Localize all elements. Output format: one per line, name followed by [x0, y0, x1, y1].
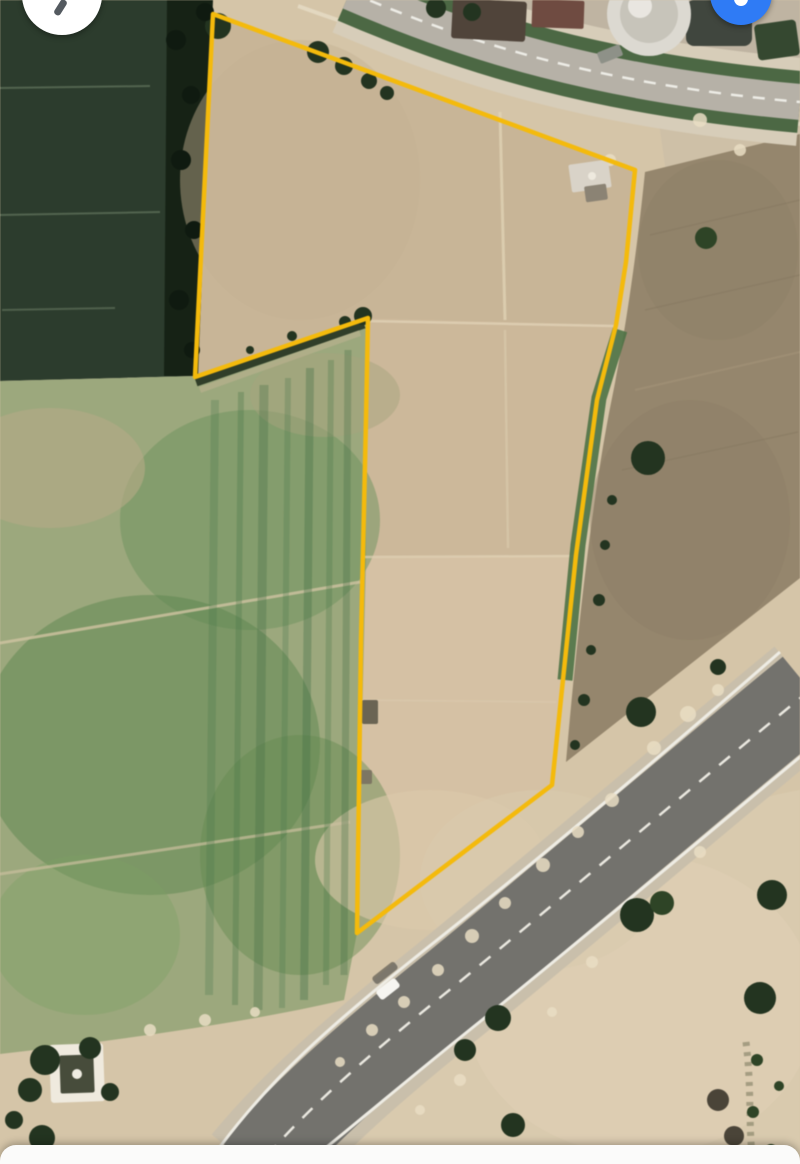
- line-farm-stripe-7: [344, 350, 348, 975]
- speckle: [432, 964, 444, 976]
- structure-hedge-block: [754, 19, 800, 60]
- line-parcel-div-2: [363, 556, 574, 557]
- structure-edge-structure-2: [360, 770, 372, 784]
- tree: [501, 1113, 525, 1137]
- structure-parcel-building-2: [584, 184, 608, 203]
- tree: [463, 3, 481, 21]
- speckle: [199, 1014, 211, 1026]
- tree: [246, 346, 254, 354]
- speckle: [680, 706, 696, 722]
- tree: [707, 1089, 729, 1111]
- speckle: [465, 929, 479, 943]
- location-icon: [734, 0, 748, 6]
- tree: [101, 1083, 119, 1101]
- speckle: [693, 113, 707, 127]
- tree: [578, 694, 590, 706]
- satellite-map-canvas[interactable]: [0, 0, 800, 1164]
- patch-brown-shade-2: [590, 400, 790, 640]
- tree: [79, 1037, 101, 1059]
- tree: [747, 1106, 759, 1118]
- tree: [169, 290, 189, 310]
- speckle: [647, 741, 661, 755]
- tree: [593, 594, 605, 606]
- tree: [30, 1045, 60, 1075]
- speckle: [398, 996, 410, 1008]
- tree: [710, 659, 726, 675]
- tree: [744, 982, 776, 1014]
- speckle: [250, 1007, 260, 1017]
- tree: [774, 1081, 784, 1091]
- tree: [620, 898, 654, 932]
- structure-roof-1: [451, 0, 527, 42]
- tree: [18, 1078, 42, 1102]
- tree: [485, 1005, 511, 1031]
- tree: [626, 697, 656, 727]
- structure-compound-dot: [72, 1069, 82, 1079]
- tree: [454, 1039, 476, 1061]
- speckle: [712, 684, 724, 696]
- speckle: [605, 793, 619, 807]
- speckle: [335, 1057, 345, 1067]
- speckle: [694, 846, 706, 858]
- compass-needle-icon: [53, 0, 68, 17]
- tree: [631, 441, 665, 475]
- patch-brown-shade-1: [638, 160, 798, 340]
- bottom-sheet[interactable]: [0, 1145, 800, 1164]
- tree: [166, 30, 186, 50]
- speckle: [454, 1074, 466, 1086]
- map-screen: [0, 0, 800, 1164]
- tree: [287, 331, 297, 341]
- speckle: [144, 1024, 156, 1036]
- tree: [586, 645, 596, 655]
- tree: [695, 227, 717, 249]
- tree: [380, 86, 394, 100]
- tree: [182, 86, 200, 104]
- tree: [171, 150, 191, 170]
- tree: [600, 540, 610, 550]
- tree: [757, 880, 787, 910]
- tree: [607, 495, 617, 505]
- tree: [570, 740, 580, 750]
- speckle: [572, 826, 584, 838]
- patch-parcel-gray-wash: [180, 40, 420, 320]
- speckle: [536, 858, 550, 872]
- speckle: [734, 144, 746, 156]
- speckle: [547, 1007, 557, 1017]
- speckle: [586, 956, 598, 968]
- tree: [650, 891, 674, 915]
- speckle: [499, 897, 511, 909]
- structure-corner-white-dot: [588, 172, 596, 180]
- tree: [751, 1054, 763, 1066]
- speckle: [366, 1024, 378, 1036]
- tree: [5, 1111, 23, 1129]
- structure-roof-2: [532, 0, 585, 29]
- speckle: [415, 1105, 425, 1115]
- tree: [724, 1126, 744, 1146]
- line-farm-stripe-3: [258, 385, 264, 1010]
- structure-edge-structure-1: [362, 700, 378, 724]
